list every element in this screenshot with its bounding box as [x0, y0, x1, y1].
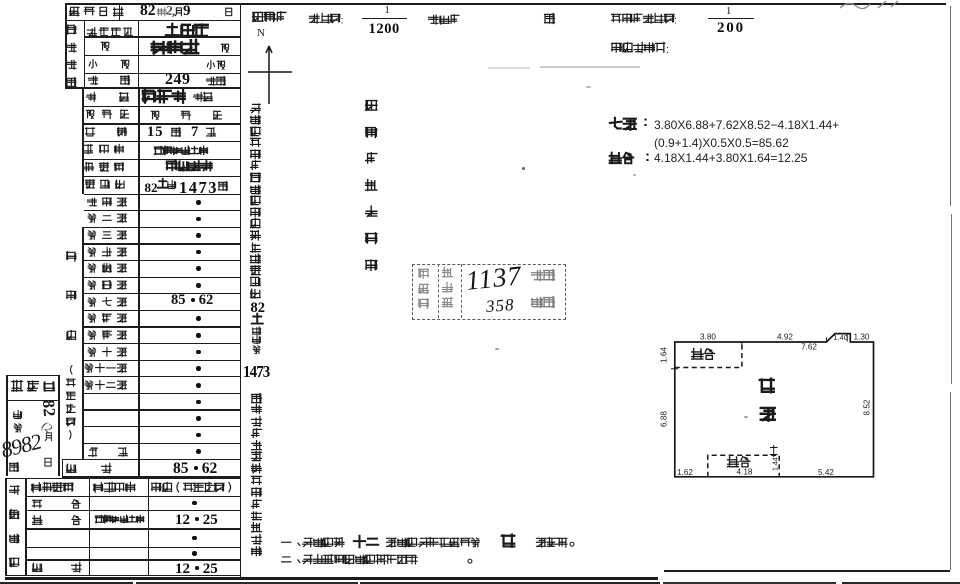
svg-text:5.42: 5.42 — [818, 468, 834, 477]
svg-text:8.52: 8.52 — [863, 399, 872, 415]
svg-text:6.88: 6.88 — [660, 411, 669, 427]
svg-text:1.44: 1.44 — [773, 457, 780, 471]
svg-text:7.62: 7.62 — [801, 343, 817, 352]
svg-text:4.92: 4.92 — [777, 333, 793, 342]
svg-text:1.62: 1.62 — [677, 468, 693, 477]
svg-text:1.64: 1.64 — [660, 347, 669, 363]
svg-text:3.80: 3.80 — [700, 333, 716, 342]
svg-text:1.40: 1.40 — [833, 333, 848, 342]
svg-text:1.30: 1.30 — [854, 333, 870, 342]
